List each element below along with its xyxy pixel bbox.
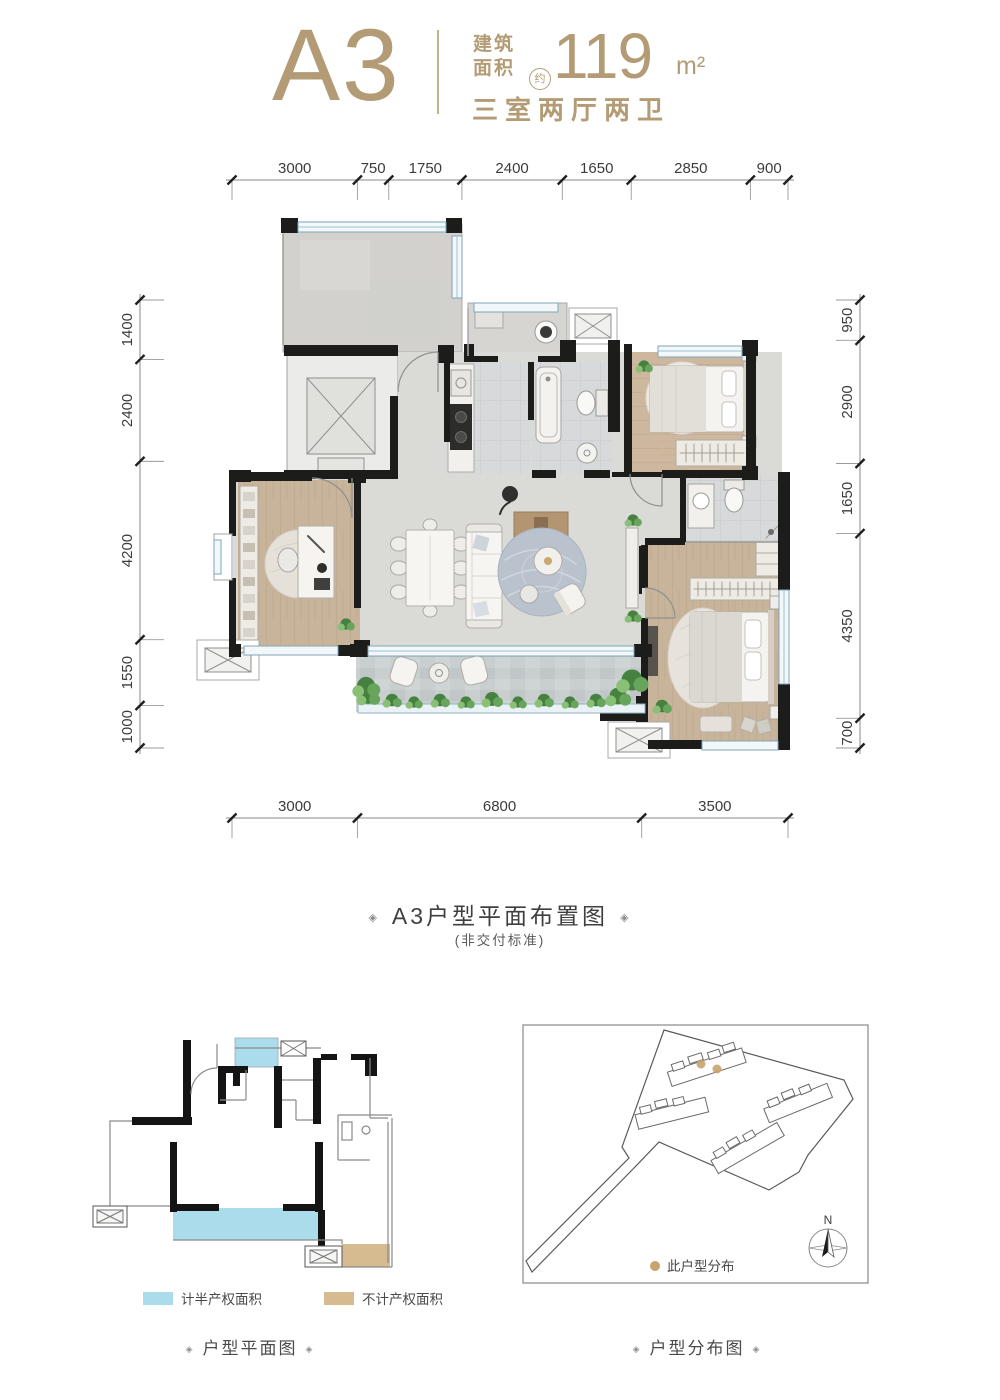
floorplan-brochure-page: { "header": { "unit_name": "A3", "area_l… (0, 0, 1000, 1400)
small-plan-title: 户型平面图 (203, 1339, 298, 1358)
legend-label-half: 计半产权面积 (181, 1288, 262, 1308)
unit-name: A3 (272, 14, 401, 116)
ornament-icon: ◈ (745, 1344, 770, 1354)
floor-lamp (502, 486, 518, 502)
layout-description: 三室两厅两卫 (472, 90, 670, 127)
site-plan-title: 户型分布图 (650, 1339, 745, 1358)
small-plan-caption: ◈户型平面图◈ (100, 1334, 400, 1359)
stove (450, 404, 472, 450)
header-divider (437, 30, 439, 114)
ornament-icon: ◈ (178, 1344, 203, 1354)
site-legend-label: 此户型分布 (667, 1258, 735, 1274)
svg-text:1400: 1400 (119, 313, 136, 346)
tv-cabinet (626, 528, 638, 608)
svg-text:2400: 2400 (495, 160, 528, 177)
north-label: N (824, 1213, 833, 1227)
site-plan-caption: ◈户型分布图◈ (547, 1334, 847, 1359)
ornament-icon: ◈ (356, 912, 391, 924)
svg-text:750: 750 (361, 160, 386, 177)
svg-text:2900: 2900 (839, 385, 856, 418)
dimension-line-right: 950290016504350700 (836, 294, 865, 754)
area-unit: m² (676, 52, 705, 81)
desk-chair (278, 548, 298, 572)
main-plan-title: A3户型平面布置图 (392, 903, 608, 929)
shower-head (768, 529, 774, 535)
main-plan-note: (非交付标准) (0, 929, 1000, 949)
sink (577, 443, 597, 463)
svg-text:1650: 1650 (839, 482, 856, 515)
svg-text:1650: 1650 (580, 160, 613, 177)
area-label: 建筑 面积 (473, 33, 515, 81)
approx-badge: 约 (529, 68, 551, 90)
legend-swatch-blue (143, 1292, 173, 1305)
ornament-icon: ◈ (625, 1344, 650, 1354)
legend-label-excluded: 不计产权面积 (362, 1288, 443, 1308)
area-value: 119 (553, 24, 652, 88)
svg-text:2400: 2400 (119, 394, 136, 427)
area-label-bottom: 面积 (473, 57, 515, 81)
svg-text:700: 700 (839, 721, 856, 746)
svg-text:3000: 3000 (278, 798, 311, 815)
toilet (577, 391, 595, 415)
main-floor-plan: 30007501750240016502850900 300068003500 … (0, 140, 1000, 880)
dimension-line-left: 14002400420015501000 (119, 294, 164, 754)
legend-dot (650, 1261, 660, 1271)
ornament-icon: ◈ (608, 912, 643, 924)
toilet2 (725, 488, 743, 512)
svg-text:3000: 3000 (278, 160, 311, 177)
main-plan-caption: ◈A3户型平面布置图◈ (0, 897, 1000, 931)
half-area-balcony (173, 1208, 320, 1240)
half-area-flue (235, 1038, 278, 1067)
excluded-area (342, 1244, 390, 1267)
svg-text:1000: 1000 (119, 710, 136, 743)
dimension-line-bottom: 300068003500 (226, 798, 794, 838)
dimension-line-top: 30007501750240016502850900 (226, 160, 794, 200)
svg-text:1550: 1550 (119, 656, 136, 689)
svg-text:950: 950 (839, 308, 856, 333)
svg-text:2850: 2850 (674, 160, 707, 177)
site-plan: N 此户型分布 (520, 1020, 880, 1290)
svg-text:4200: 4200 (119, 534, 136, 567)
svg-text:1750: 1750 (409, 160, 442, 177)
svg-text:900: 900 (757, 160, 782, 177)
area-legend: 计半产权面积 不计产权面积 (143, 1288, 443, 1308)
area-label-top: 建筑 (473, 33, 515, 57)
technical-floor-plan (70, 1030, 410, 1275)
ornament-icon: ◈ (298, 1344, 323, 1354)
svg-text:4350: 4350 (839, 609, 856, 642)
unit-location-dot (697, 1060, 706, 1069)
svg-text:3500: 3500 (698, 798, 731, 815)
unit-location-dot (713, 1065, 722, 1074)
svg-text:6800: 6800 (483, 798, 516, 815)
legend-swatch-tan (324, 1292, 354, 1305)
